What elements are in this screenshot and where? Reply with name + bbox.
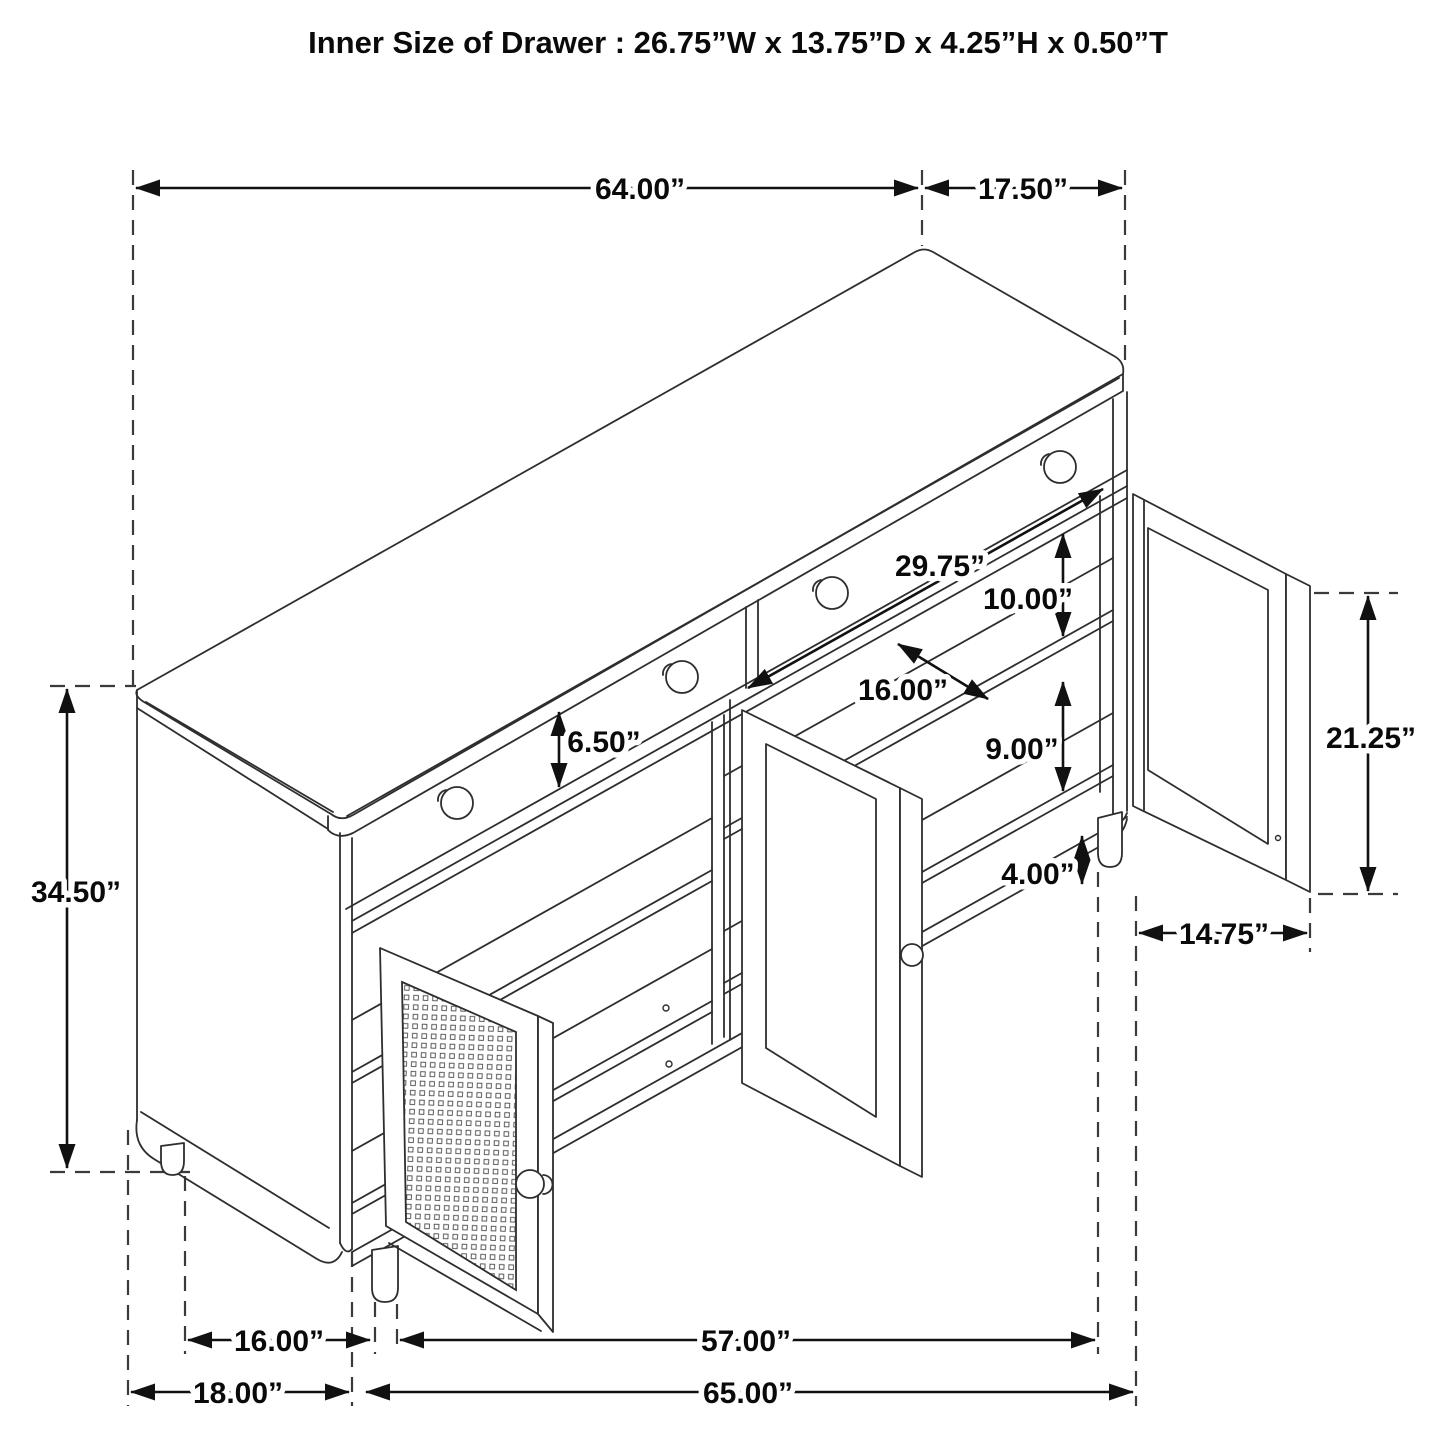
right-door-edge xyxy=(1286,574,1310,892)
dim-label-leg-span-width: 57.00” xyxy=(701,1325,791,1358)
cane-door-knob xyxy=(516,1170,544,1198)
dim-label-top-width: 64.00” xyxy=(595,173,685,206)
dim-label-shelf-gap-upper: 10.00” xyxy=(983,583,1073,616)
middle-door xyxy=(742,710,923,1177)
drawer-knob xyxy=(816,577,848,609)
back-left-leg xyxy=(161,1143,184,1175)
right-door xyxy=(1133,494,1310,892)
base-rail-left-outer xyxy=(136,1120,342,1263)
right-door-dot xyxy=(1276,836,1281,841)
furniture-dimension-diagram: Inner Size of Drawer : 26.75”W x 13.75”D… xyxy=(0,0,1445,1445)
drawer-knob xyxy=(441,787,473,819)
dim-label-shelf-gap-lower: 9.00” xyxy=(985,733,1058,766)
drawer-knob xyxy=(666,661,698,693)
dim-label-base-width: 65.00” xyxy=(703,1377,793,1410)
sideboard-line-drawing: Inner Size of Drawer : 26.75”W x 13.75”D… xyxy=(0,0,1445,1445)
front-right-leg xyxy=(1098,812,1122,867)
dim-label-interior-width: 29.75” xyxy=(895,550,985,583)
dim-label-leg-span-depth: 16.00” xyxy=(234,1325,324,1358)
diagram-title: Inner Size of Drawer : 26.75”W x 13.75”D… xyxy=(308,25,1168,60)
shelf-pin-hole xyxy=(666,1061,672,1067)
front-left-leg xyxy=(372,1246,398,1302)
cabinet-drawing xyxy=(136,250,1310,1333)
dim-label-top-depth: 17.50” xyxy=(978,173,1068,206)
dim-label-door-width: 14.75” xyxy=(1179,918,1269,951)
cane-door xyxy=(380,948,553,1332)
dim-label-overall-height: 34.50” xyxy=(31,876,121,909)
shelf-pin-hole xyxy=(663,1005,669,1011)
middle-door-edge xyxy=(900,788,922,1177)
dim-label-base-depth: 18.00” xyxy=(193,1377,283,1410)
drawer-knob xyxy=(1044,451,1076,483)
dim-label-leg-height: 4.00” xyxy=(1001,858,1074,891)
dim-label-drawer-front: 6.50” xyxy=(567,726,640,759)
front-left-post-foot xyxy=(340,1243,352,1251)
dim-label-shelf-depth: 16.00” xyxy=(858,674,948,707)
legs xyxy=(161,812,1122,1302)
dim-label-door-height: 21.25” xyxy=(1326,722,1416,755)
middle-door-knob xyxy=(901,944,923,966)
